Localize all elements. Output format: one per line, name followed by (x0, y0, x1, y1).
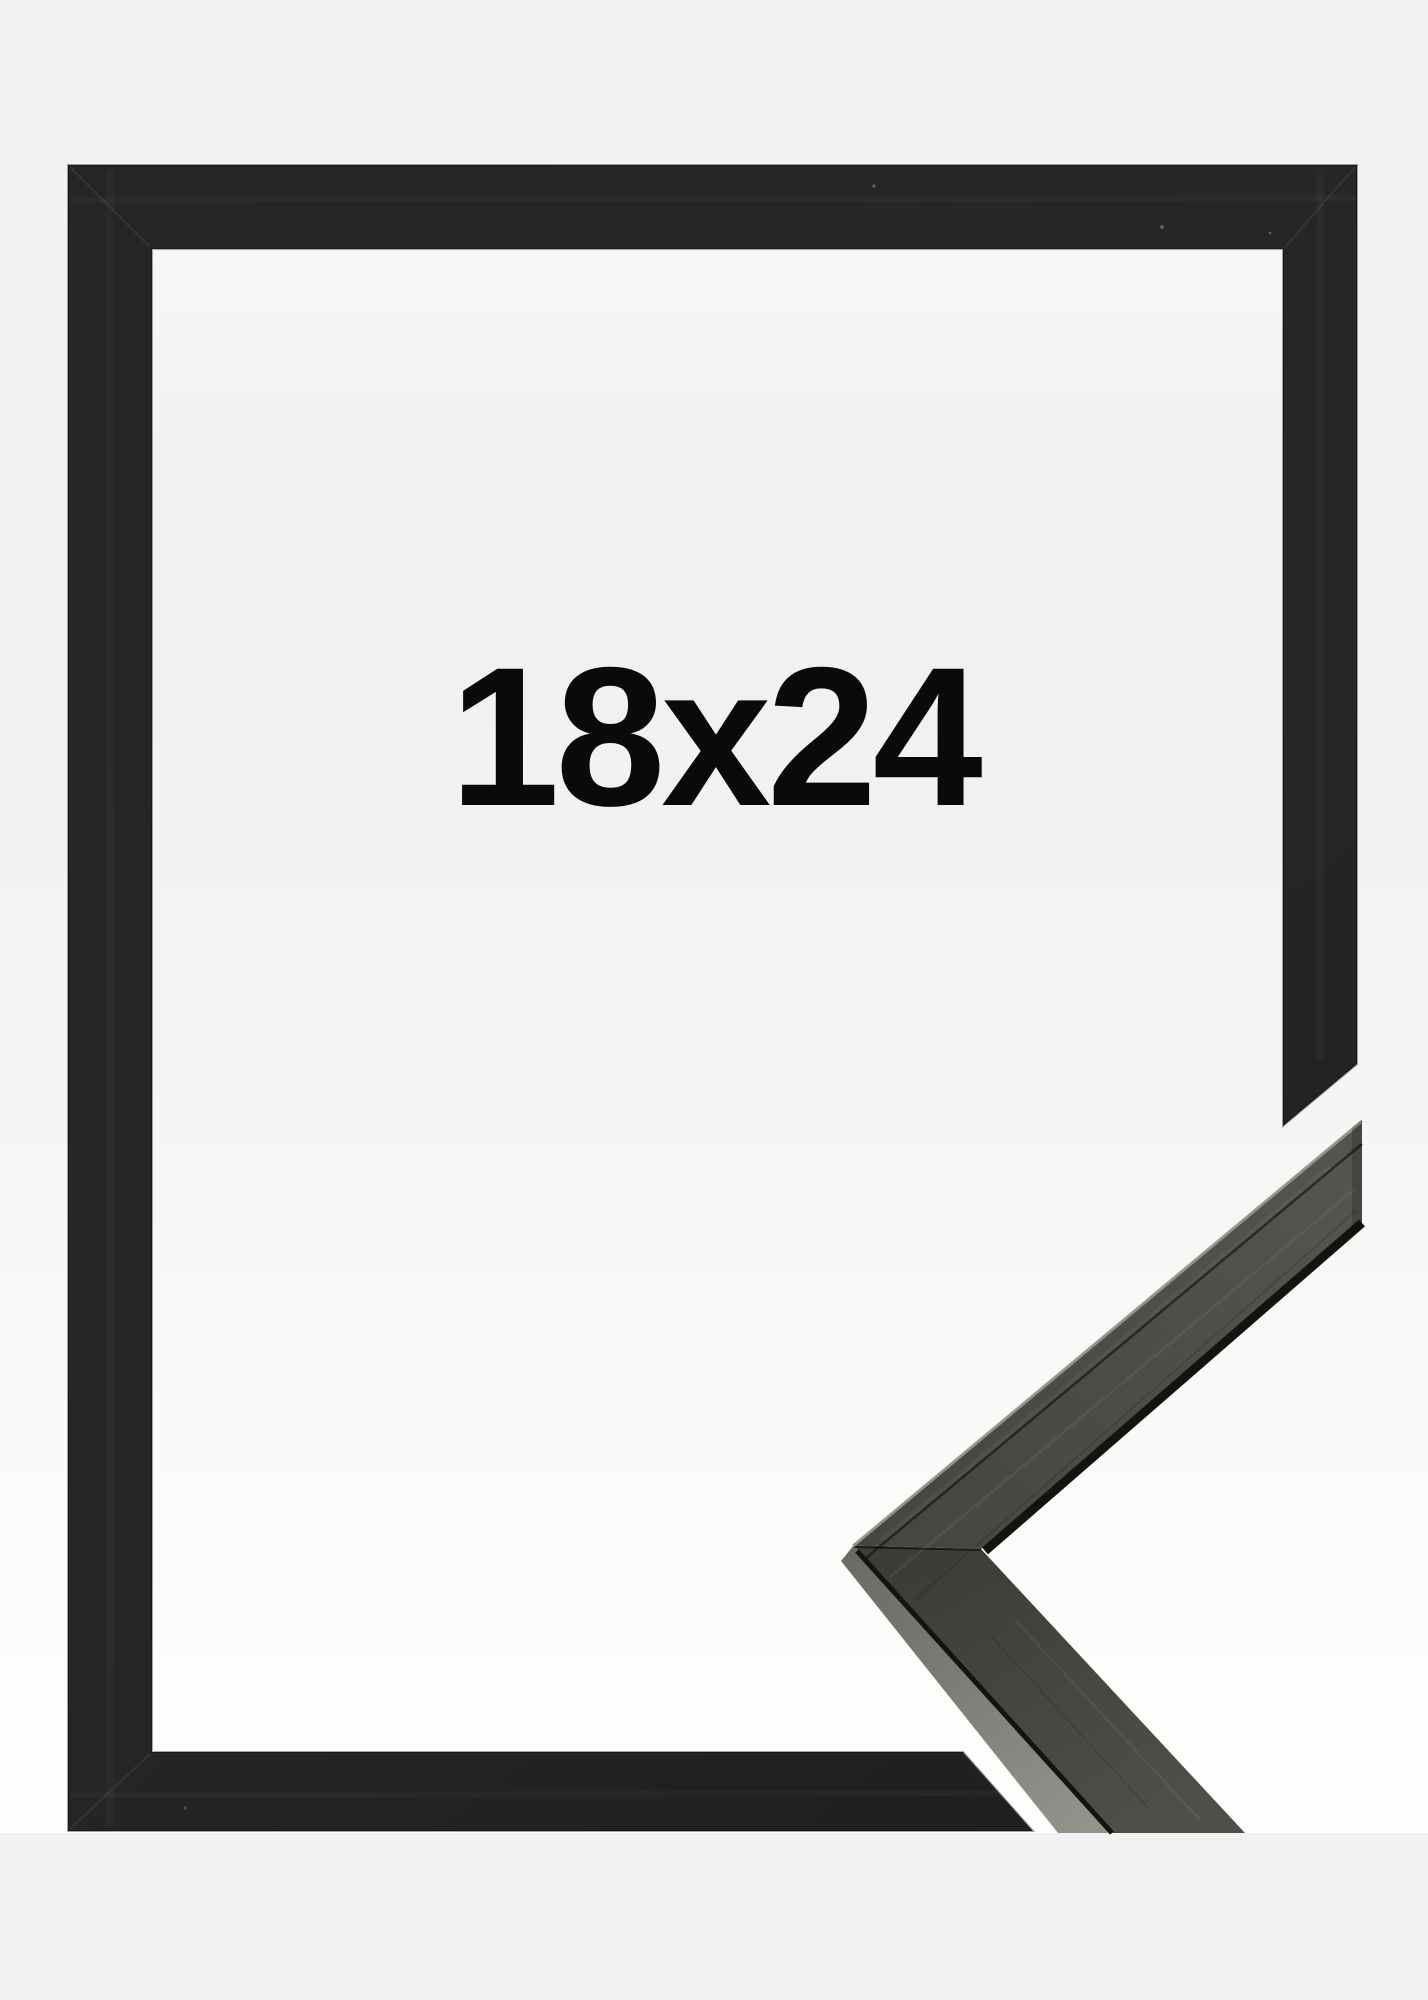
frame-product-graphic (0, 0, 1428, 2000)
frame-edge-outline (68, 165, 1357, 1831)
dust-speck (872, 184, 875, 187)
frame-grain-bottom (70, 1793, 1030, 1795)
corner-sample-upper-grain-soft (880, 1167, 1330, 1542)
frame-grain-top (70, 198, 1355, 200)
dust-speck (1269, 232, 1272, 235)
corner-sample-top-groove (866, 1144, 1362, 1558)
frame-moulding (68, 165, 1357, 1831)
picture-frame (68, 165, 1357, 1831)
dust-speck (183, 1806, 186, 1809)
corner-sample-upper-grain-light (890, 1189, 1355, 1577)
corner-sample-end-cut-face (1352, 1120, 1362, 1234)
size-label: 18x24 (0, 638, 1428, 836)
dust-speck (1160, 225, 1164, 229)
corner-sample-top-highlight (853, 1121, 1362, 1546)
corner-sample-upper-grain-dark (915, 1210, 1357, 1600)
corner-sample (841, 1120, 1362, 1833)
